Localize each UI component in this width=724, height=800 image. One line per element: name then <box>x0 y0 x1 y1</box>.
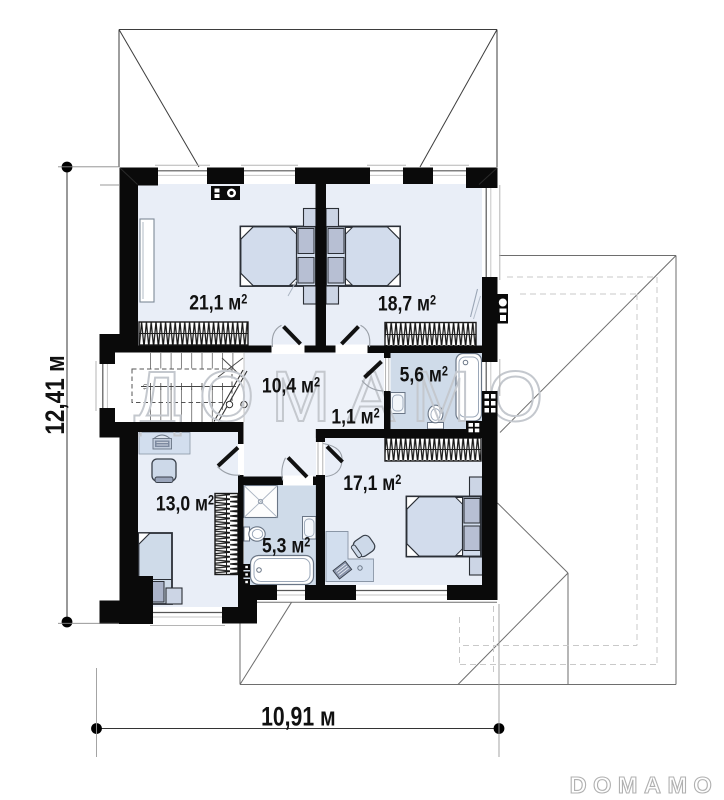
svg-text:10,4 м2: 10,4 м2 <box>262 374 320 398</box>
svg-text:18,7 м2: 18,7 м2 <box>378 292 436 316</box>
svg-text:1,1 м2: 1,1 м2 <box>331 405 380 429</box>
svg-text:12,41 м: 12,41 м <box>41 355 70 434</box>
svg-text:5,6 м2: 5,6 м2 <box>400 363 449 387</box>
svg-text:5,3 м2: 5,3 м2 <box>262 534 311 558</box>
svg-text:17,1 м2: 17,1 м2 <box>343 471 401 495</box>
svg-text:13,0 м2: 13,0 м2 <box>156 492 214 516</box>
svg-text:DOMAMO: DOMAMO <box>570 772 719 798</box>
svg-text:21,1 м2: 21,1 м2 <box>189 291 247 315</box>
svg-text:10,91 м: 10,91 м <box>261 702 336 732</box>
